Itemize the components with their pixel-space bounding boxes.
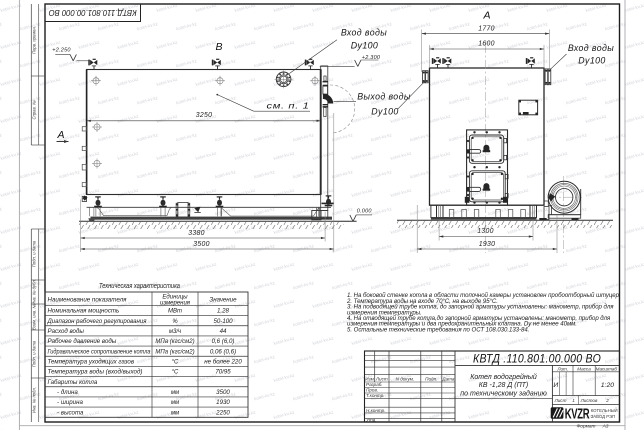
svg-text:Котел водогрейный: Котел водогрейный [470, 373, 537, 381]
svg-text:м3/ч: м3/ч [169, 329, 181, 335]
svg-text:Номинальная мощность: Номинальная мощность [48, 308, 120, 315]
svg-text:1: 1 [572, 398, 575, 403]
svg-text:1930: 1930 [216, 399, 230, 406]
svg-text:Dy100: Dy100 [578, 56, 605, 66]
svg-text:Листов: Листов [580, 398, 598, 403]
svg-text:N докум.: N докум. [396, 376, 415, 381]
svg-text:Лит.: Лит. [556, 367, 568, 372]
svg-text:50-100: 50-100 [213, 318, 233, 325]
svg-text:Dy100: Dy100 [351, 41, 378, 51]
svg-text:Наименование показателя: Наименование показателя [48, 297, 128, 304]
svg-text:70/95: 70/95 [215, 369, 231, 376]
svg-text:Температура уходящих газов: Температура уходящих газов [48, 359, 135, 366]
svg-text:КОТЕЛЬНЫЙ: КОТЕЛЬНЫЙ [591, 408, 618, 413]
svg-text:Утв.: Утв. [366, 417, 376, 422]
svg-text:мм: мм [171, 390, 179, 396]
svg-text:В: В [215, 41, 222, 53]
svg-text:Диапазон рабочего регулировани: Диапазон рабочего регулирования [47, 318, 148, 325]
svg-text:КВТД.110.801.00.000 ВО: КВТД.110.801.00.000 ВО [48, 8, 137, 17]
svg-text:Вход воды: Вход воды [341, 28, 387, 38]
svg-text:Формат: Формат [576, 424, 595, 430]
svg-text:1930: 1930 [479, 241, 496, 248]
svg-text:Инв. № подл.: Инв. № подл. [32, 387, 37, 413]
svg-text:°С: °С [172, 370, 179, 376]
svg-text:Перв. примен.: Перв. примен. [32, 26, 37, 54]
svg-text:А: А [56, 129, 64, 141]
svg-text:Масштаб: Масштаб [596, 367, 618, 372]
svg-text:+2.250: +2.250 [52, 48, 71, 54]
svg-text:%: % [172, 319, 178, 325]
svg-text:ЗАВОД РЭП: ЗАВОД РЭП [591, 414, 616, 419]
svg-text:Лист: Лист [375, 376, 388, 381]
svg-text:Подп.: Подп. [425, 376, 437, 381]
svg-text:0,06 (0,6): 0,06 (0,6) [210, 348, 236, 355]
svg-text:измерения: измерения [160, 300, 191, 306]
svg-text:Взам. инв. №: Взам. инв. № [32, 304, 37, 330]
svg-text:Пров.: Пров. [366, 388, 378, 393]
svg-text:Dy100: Dy100 [371, 106, 398, 116]
svg-text:Подп. и дата: Подп. и дата [32, 340, 37, 367]
svg-text:Изм: Изм [365, 376, 374, 381]
svg-text:Расход воды: Расход воды [48, 328, 85, 335]
svg-text:2: 2 [605, 398, 609, 403]
svg-text:Лист: Лист [554, 398, 567, 403]
svg-text:3250: 3250 [196, 112, 213, 119]
svg-text:1300: 1300 [477, 228, 494, 235]
svg-text:1:20: 1:20 [601, 382, 614, 389]
svg-text:Выход воды: Выход воды [357, 91, 411, 101]
svg-text:Дата: Дата [441, 376, 455, 381]
svg-text:°С: °С [172, 360, 179, 366]
svg-text:Инв. № дубл.: Инв. № дубл. [32, 279, 37, 305]
svg-text:Т.контр.: Т.контр. [366, 393, 385, 398]
svg-text:И: И [553, 382, 558, 389]
svg-text:Разраб.: Разраб. [366, 382, 383, 387]
svg-text:3380: 3380 [188, 230, 205, 237]
svg-text:по техническому заданию: по техническому заданию [460, 390, 547, 398]
svg-text:- высота: - высота [57, 409, 84, 416]
svg-text:1,28: 1,28 [217, 308, 230, 315]
svg-text:3500: 3500 [216, 389, 230, 396]
svg-text:5. Остальные технические треб: 5. Остальные технические требования по О… [347, 326, 529, 333]
svg-text:Вход воды: Вход воды [568, 43, 614, 53]
svg-text:Габариты котла: Габариты котла [48, 379, 98, 386]
svg-text:- длина: - длина [57, 389, 78, 396]
svg-text:не более 220: не более 220 [204, 359, 242, 366]
svg-text:2250: 2250 [215, 409, 230, 416]
svg-text:- ширина: - ширина [57, 399, 83, 406]
svg-text:0,6 (6,0): 0,6 (6,0) [212, 338, 235, 345]
svg-text:мм: мм [171, 400, 179, 406]
svg-text:+2.300: +2.300 [362, 55, 381, 61]
svg-text:Подп. и дата: Подп. и дата [32, 240, 37, 267]
svg-text:0.000: 0.000 [357, 209, 373, 215]
svg-text:МВт: МВт [168, 309, 182, 315]
svg-text:KVZR: KVZR [565, 406, 590, 422]
svg-text:мм: мм [171, 410, 179, 416]
svg-text:МПа (кгс/см2): МПа (кгс/см2) [155, 339, 194, 345]
svg-text:Масса: Масса [577, 367, 591, 372]
svg-text:1770: 1770 [478, 26, 495, 33]
svg-text:Гидравлическое сопротивление к: Гидравлическое сопротивление котла [48, 348, 152, 355]
svg-text:Техническая характеристика: Техническая характеристика [99, 283, 180, 290]
svg-text:Н.контр.: Н.контр. [366, 408, 385, 413]
svg-text:Рабочее давление воды: Рабочее давление воды [48, 338, 117, 345]
svg-text:см. п. 1: см. п. 1 [267, 100, 310, 110]
svg-text:1600: 1600 [478, 41, 495, 48]
svg-text:Температура воды (вход/выход): Температура воды (вход/выход) [48, 369, 143, 376]
svg-text:Справ. №: Справ. № [32, 100, 37, 119]
svg-text:КВТД .110.801.00.000 ВО: КВТД .110.801.00.000 ВО [473, 351, 601, 365]
svg-text:3500: 3500 [193, 241, 210, 248]
svg-text:А3: А3 [602, 424, 609, 430]
svg-text:44: 44 [220, 328, 227, 335]
svg-text:МПа (кгс/см2): МПа (кгс/см2) [155, 349, 194, 355]
svg-text:А: А [482, 10, 490, 22]
svg-text:КВ -1,28 Д (ПТ): КВ -1,28 Д (ПТ) [479, 382, 529, 389]
svg-text:Значение: Значение [209, 297, 237, 304]
